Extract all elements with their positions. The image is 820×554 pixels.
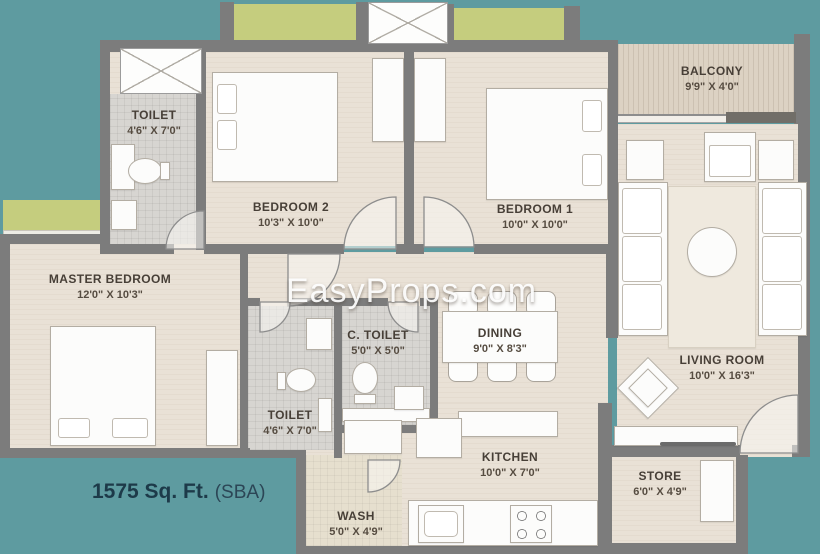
wall [794, 34, 810, 124]
wc-cistern [160, 162, 170, 180]
wardrobe-master [206, 350, 238, 446]
room-name: TOILET [242, 408, 338, 424]
sofa-cushion [762, 284, 802, 330]
wc-toilet [128, 158, 162, 184]
wall [606, 543, 748, 554]
floor-plan-canvas: TOILET 4'6" X 7'0" BEDROOM 2 10'3" X 10'… [0, 0, 820, 554]
room-label-living-room: LIVING ROOM 10'0" X 16'3" [642, 353, 802, 383]
room-label-toilet-top: TOILET 4'6" X 7'0" [106, 108, 202, 138]
pillow [582, 154, 602, 186]
room-dims: 9'9" X 4'0" [632, 80, 792, 94]
wall [564, 6, 580, 52]
room-dims: 12'0" X 10'3" [20, 288, 200, 302]
room-name: STORE [601, 469, 719, 485]
room-name: BALCONY [632, 64, 792, 80]
kitchen-sink [418, 505, 464, 543]
wall [474, 244, 610, 254]
sofa-cushion [762, 188, 802, 234]
pillow [582, 100, 602, 132]
sofa-cushion [622, 236, 662, 282]
washbasin [394, 386, 424, 410]
wall [248, 298, 260, 306]
ledge-master-left [3, 200, 103, 232]
room-label-bedroom1: BEDROOM 1 10'0" X 10'0" [455, 202, 615, 232]
room-label-wash: WASH 5'0" X 4'9" [296, 509, 416, 539]
wardrobe-bedroom2 [372, 58, 404, 142]
room-dims: 6'0" X 4'9" [601, 485, 719, 499]
room-label-c-toilet: C. TOILET 5'0" X 5'0" [328, 328, 428, 358]
ledge-top-left [232, 4, 358, 42]
room-name: BEDROOM 2 [211, 200, 371, 216]
wall [792, 445, 810, 457]
tv-screen [660, 442, 736, 446]
wall [220, 2, 234, 52]
room-dims: 10'0" X 16'3" [642, 369, 802, 383]
wall [100, 244, 174, 254]
pillow [58, 418, 90, 438]
room-name: DINING [440, 326, 560, 342]
room-name: KITCHEN [430, 450, 590, 466]
wall [606, 250, 618, 338]
room-dims: 5'0" X 4'9" [296, 525, 416, 539]
pillow [112, 418, 148, 438]
wall [610, 445, 740, 457]
room-dims: 4'6" X 7'0" [106, 124, 202, 138]
sink-basin [424, 511, 458, 537]
pillow [217, 120, 237, 150]
pillow [217, 84, 237, 114]
wall [430, 298, 438, 433]
room-name: BEDROOM 1 [455, 202, 615, 218]
room-dims: 4'6" X 7'0" [242, 424, 338, 438]
side-table [626, 140, 664, 180]
room-name: LIVING ROOM [642, 353, 802, 369]
room-name: C. TOILET [328, 328, 428, 344]
room-dims: 5'0" X 5'0" [328, 344, 428, 358]
refrigerator [344, 420, 402, 454]
wall [0, 234, 104, 244]
balcony-slider-panel [726, 112, 796, 123]
room-dims: 10'3" X 10'0" [211, 216, 371, 230]
duct-shaft-toilet [120, 48, 202, 94]
area-unit-note: (SBA) [215, 482, 266, 503]
wc-toilet [286, 368, 316, 392]
side-table [758, 140, 794, 180]
room-label-toilet-bottom: TOILET 4'6" X 7'0" [242, 408, 338, 438]
ledge-top-right [452, 8, 566, 42]
armchair [704, 132, 756, 182]
room-label-master-bedroom: MASTER BEDROOM 12'0" X 10'3" [20, 272, 200, 302]
area-value: 1575 Sq. Ft. [92, 480, 209, 503]
wc-cistern [354, 394, 376, 404]
wall [296, 546, 608, 554]
wall [100, 40, 110, 254]
duct-shaft-top [368, 2, 448, 44]
wc-cistern [277, 372, 286, 390]
sofa-cushion [622, 188, 662, 234]
room-label-balcony: BALCONY 9'9" X 4'0" [632, 64, 792, 94]
room-dims: 10'0" X 7'0" [430, 466, 590, 480]
wall [404, 52, 414, 248]
total-area-label: 1575 Sq. Ft.(SBA) [92, 480, 265, 504]
kitchen-counter-upper [458, 411, 558, 437]
wc-toilet [352, 362, 378, 394]
wardrobe-bedroom1 [414, 58, 446, 142]
room-label-store: STORE 6'0" X 4'9" [601, 469, 719, 499]
wall [0, 234, 10, 458]
stove [510, 505, 552, 543]
sofa-cushion [762, 236, 802, 282]
room-label-bedroom2: BEDROOM 2 10'3" X 10'0" [211, 200, 371, 230]
armchair-seat [709, 145, 751, 177]
room-dims: 10'0" X 10'0" [455, 218, 615, 232]
room-name: TOILET [106, 108, 202, 124]
wall [356, 2, 368, 52]
sofa-cushion [622, 284, 662, 330]
room-label-kitchen: KITCHEN 10'0" X 7'0" [430, 450, 590, 480]
room-label-dining: DINING 9'0" X 8'3" [440, 326, 560, 356]
wall [204, 244, 344, 254]
wall [396, 244, 424, 254]
shower-tray [111, 200, 137, 230]
coffee-table [687, 227, 737, 277]
room-name: MASTER BEDROOM [20, 272, 200, 288]
wall [736, 455, 748, 553]
wall [0, 448, 250, 458]
watermark: EasyProps.com [286, 272, 537, 311]
room-dims: 9'0" X 8'3" [440, 342, 560, 356]
room-name: WASH [296, 509, 416, 525]
